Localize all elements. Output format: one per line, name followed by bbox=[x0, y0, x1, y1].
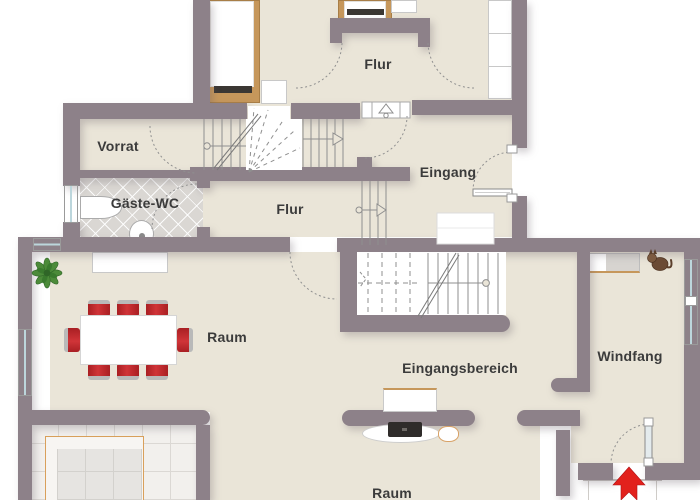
room-label-gaeste-wc: Gäste-WC bbox=[111, 195, 180, 211]
floor-inset-tiles bbox=[57, 449, 142, 500]
toilet bbox=[129, 220, 154, 248]
room-label-raum-dining: Raum bbox=[207, 329, 247, 345]
window-wc bbox=[64, 185, 78, 223]
nightstand bbox=[261, 80, 287, 104]
step-line bbox=[588, 481, 589, 500]
floorplan-canvas: Vorrat Gäste-WC Flur Flur Eingang Raum E… bbox=[0, 0, 700, 500]
wall-segment bbox=[337, 238, 700, 252]
wardrobe-shelf bbox=[489, 66, 511, 67]
room-label-windfang: Windfang bbox=[597, 348, 662, 364]
stool bbox=[438, 426, 459, 442]
wall-segment bbox=[63, 103, 80, 186]
bed-foot-rail bbox=[214, 86, 252, 93]
window-windfang-sash bbox=[685, 296, 697, 306]
toilet-bowl bbox=[139, 233, 145, 244]
window-raum-left bbox=[18, 329, 32, 396]
wall-segment bbox=[556, 430, 570, 496]
wardrobe-shelf bbox=[489, 33, 511, 34]
bed-mattress bbox=[210, 1, 254, 87]
wall-segment bbox=[63, 222, 80, 238]
wall-segment bbox=[18, 410, 210, 425]
chair bbox=[64, 328, 80, 352]
room-label-flur-lower: Flur bbox=[276, 201, 303, 217]
cabinet-top bbox=[606, 254, 639, 271]
sideboard bbox=[92, 252, 168, 273]
bed-mattress bbox=[344, 1, 386, 31]
room-label-raum-lower: Raum bbox=[372, 485, 412, 500]
entrance-steps bbox=[583, 479, 662, 500]
step-line bbox=[656, 481, 657, 500]
wall-segment bbox=[512, 0, 527, 148]
floor-windfang-link bbox=[571, 392, 590, 463]
shoe-cabinet bbox=[589, 253, 640, 273]
chair bbox=[117, 363, 139, 380]
wardrobe bbox=[488, 0, 512, 99]
bed bbox=[204, 0, 260, 103]
room-label-eingangsbereich: Eingangsbereich bbox=[402, 360, 518, 376]
bed-foot-rail bbox=[347, 9, 384, 15]
nightstand bbox=[391, 0, 417, 13]
chair bbox=[146, 363, 168, 380]
wall-segment bbox=[196, 425, 210, 500]
dining-table bbox=[80, 315, 177, 365]
bed bbox=[338, 0, 392, 33]
wall-segment bbox=[578, 463, 613, 480]
window-raum-top bbox=[33, 238, 61, 251]
laptop-keyboard bbox=[402, 428, 407, 431]
wall-segment bbox=[512, 196, 527, 252]
room-label-flur-upper: Flur bbox=[364, 56, 391, 72]
chair bbox=[88, 363, 110, 380]
wall-segment bbox=[645, 463, 684, 480]
desk bbox=[383, 388, 437, 412]
laptop bbox=[388, 422, 422, 437]
room-label-vorrat: Vorrat bbox=[97, 138, 138, 154]
room-label-eingang: Eingang bbox=[420, 164, 477, 180]
chair bbox=[177, 328, 193, 352]
